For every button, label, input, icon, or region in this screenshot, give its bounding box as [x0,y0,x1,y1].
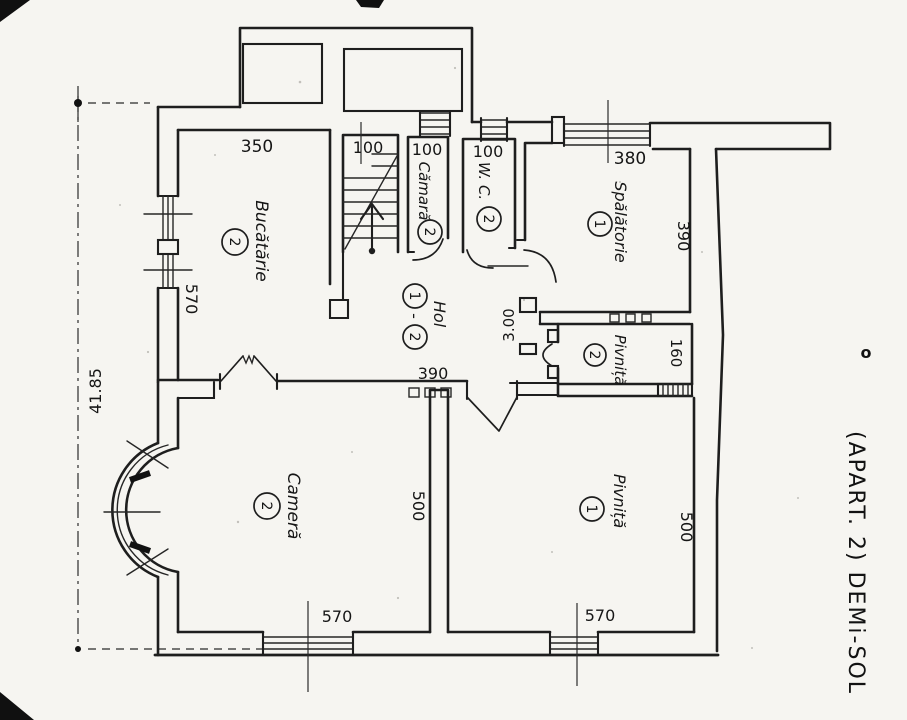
room-label-hol: Hol [430,301,449,328]
svg-text:2: 2 [480,215,496,224]
svg-text:1: 1 [583,505,599,514]
room-label-camara: Cămară [415,162,433,221]
dim-camara-top: 100 [412,140,443,159]
svg-text:2: 2 [226,238,242,247]
dim-camera-right: 500 [409,491,428,522]
dim-pivnita1-bottom: 570 [585,606,616,625]
dim-hol-passage: 3.00 [500,308,518,341]
room-label-spalatorie: Spălătorie [611,181,630,262]
floor-plan-drawing: 41.85 [0,0,907,720]
dim-camera-bottom: 570 [322,607,353,626]
room-label-pivnita1: Pivniță [610,474,629,528]
dim-spalatorie-top: 380 [614,149,646,169]
scanned-floor-plan-page: 41.85 [0,0,907,720]
dim-wc-top: 100 [473,142,504,161]
dim-spalatorie-right: 390 [674,221,693,252]
dim-scara-top: 100 [353,138,384,157]
svg-text:2: 2 [258,502,274,511]
side-mark: o [861,343,872,362]
dim-bucatarie-top: 350 [241,137,273,157]
dim-pivnita1-right: 500 [677,512,696,543]
room-label-wc: W. C. [475,162,493,200]
dim-hol-south: 390 [418,364,449,383]
room-label-pivnita2: Pivniță [611,335,629,386]
site-dimension-41-85: 41.85 [86,368,105,414]
dim-bucatarie-left: 570 [182,284,201,315]
svg-text:2: 2 [586,351,602,360]
room-label-camera: Cameră [283,473,303,540]
side-title: (APART. 2) DEMi-SOL [843,431,868,695]
dim-pivnita2-right: 160 [667,339,685,368]
paper-background [0,0,907,720]
hol-number-separator: - [405,313,424,319]
svg-text:2: 2 [421,228,437,237]
svg-text:1: 1 [406,292,422,301]
room-label-bucatarie: Bucătărie [251,200,271,281]
svg-text:2: 2 [406,333,422,342]
svg-text:1: 1 [591,220,607,229]
